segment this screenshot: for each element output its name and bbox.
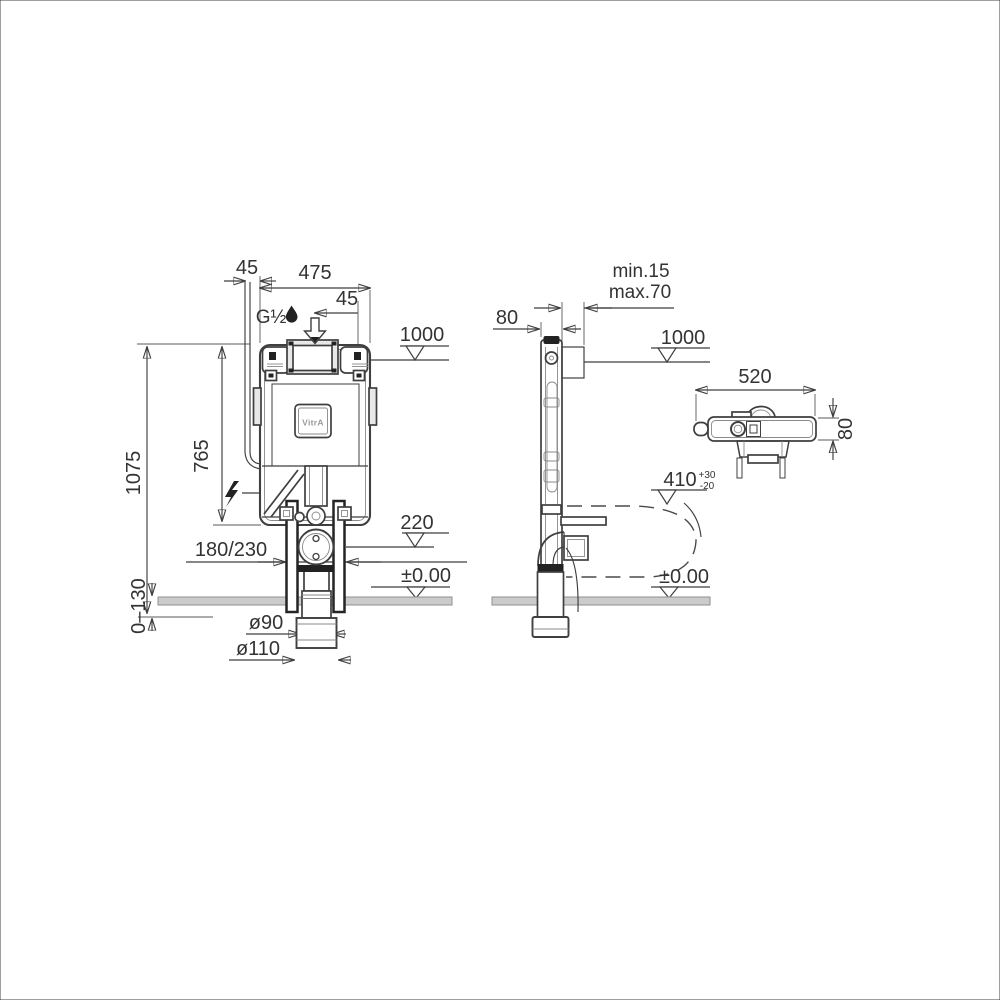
water-inlet	[286, 306, 326, 344]
socket-hole	[313, 554, 319, 560]
canvas-background	[0, 0, 1000, 1000]
dim-label-45-left: 45	[236, 257, 258, 279]
top-view: 520 80	[694, 366, 857, 478]
bracket-foot	[748, 455, 778, 463]
ref-label-410: 410	[663, 469, 696, 491]
wall-block-bg	[562, 347, 584, 378]
socket-hole	[313, 536, 319, 542]
ref-label-1000-front: 1000	[400, 324, 445, 346]
water-drop-icon	[286, 306, 298, 323]
dim-label-180-230: 180/230	[195, 539, 267, 561]
tol-label-plus: +30	[699, 470, 716, 481]
bracket-mark-right	[354, 352, 361, 360]
box-corner	[332, 369, 337, 373]
dim-label-min15: min.15	[612, 261, 669, 282]
dim-label-dia90: ø90	[249, 612, 283, 634]
box-corner	[289, 342, 294, 346]
wall-block-hatch	[562, 347, 584, 378]
leg-pin-right	[780, 458, 785, 478]
valve-knob	[295, 513, 304, 522]
dim-label-80-side: 80	[496, 307, 518, 329]
ref-label-220: 220	[400, 512, 433, 534]
level-triangle	[658, 490, 676, 504]
dim-label-max70: max.70	[609, 282, 671, 303]
dim-label-80-top: 80	[835, 418, 857, 440]
front-view: VitrA	[123, 257, 467, 660]
leg-clamp-left	[280, 507, 293, 520]
bracket-mark-left	[269, 352, 276, 360]
fixing-tab-right	[369, 388, 377, 425]
label-inlet-thread: G½	[256, 307, 287, 328]
clip-mark	[357, 374, 362, 378]
outlet-seal-band	[298, 565, 334, 572]
leg-clamp-right	[338, 507, 351, 520]
dim-label-1075: 1075	[123, 451, 145, 496]
flush-valve-outlet	[307, 507, 325, 525]
dim-label-dia110: ø110	[236, 638, 280, 660]
level-triangle	[407, 587, 425, 598]
wall-finish-block	[562, 347, 584, 378]
level-triangle	[406, 533, 424, 547]
frame-bracket	[542, 505, 561, 514]
dim-label-520: 520	[738, 366, 771, 388]
seal-band-side	[538, 564, 564, 572]
level-triangle	[660, 587, 678, 598]
end-tab	[694, 423, 708, 436]
ref-label-1000-side: 1000	[661, 327, 706, 349]
cistern-top-outline	[694, 407, 816, 478]
wall-block-hatch	[562, 347, 584, 378]
side-view: 80 min.15 max.70 1000 410 +30 -20 ±0.00	[492, 261, 716, 637]
outlet-fitting-110	[297, 618, 337, 648]
frame-profile	[533, 336, 607, 637]
level-triangle	[658, 348, 676, 362]
clip-mark	[269, 374, 274, 378]
level-triangle	[406, 346, 424, 360]
tol-label-minus: -20	[700, 481, 715, 492]
inlet-port-side	[546, 352, 558, 364]
ref-label-zero-front: ±0.00	[401, 565, 451, 587]
technical-drawing: VitrA	[0, 0, 1000, 1000]
leg-pin-left	[737, 458, 742, 478]
pan-fixing-plate	[561, 517, 606, 525]
ref-label-zero-side: ±0.00	[659, 566, 709, 588]
lightning-bolt-icon	[225, 481, 239, 507]
access-box-opening	[293, 346, 332, 371]
dim-label-0-130: 0–130	[128, 578, 150, 634]
frame-cap	[544, 336, 560, 344]
box-corner	[289, 369, 294, 373]
drain-fitting-side	[533, 617, 569, 637]
dim-label-45-inlet: 45	[336, 288, 358, 310]
dim-label-765: 765	[191, 439, 213, 472]
brand-logo: VitrA	[302, 418, 324, 428]
fixing-tab-left	[254, 388, 262, 425]
dim-label-475: 475	[298, 262, 331, 284]
box-corner	[332, 342, 337, 346]
drain-pipe-side	[538, 572, 564, 617]
flush-pipe	[305, 466, 327, 506]
floor-slab-side	[492, 597, 710, 605]
